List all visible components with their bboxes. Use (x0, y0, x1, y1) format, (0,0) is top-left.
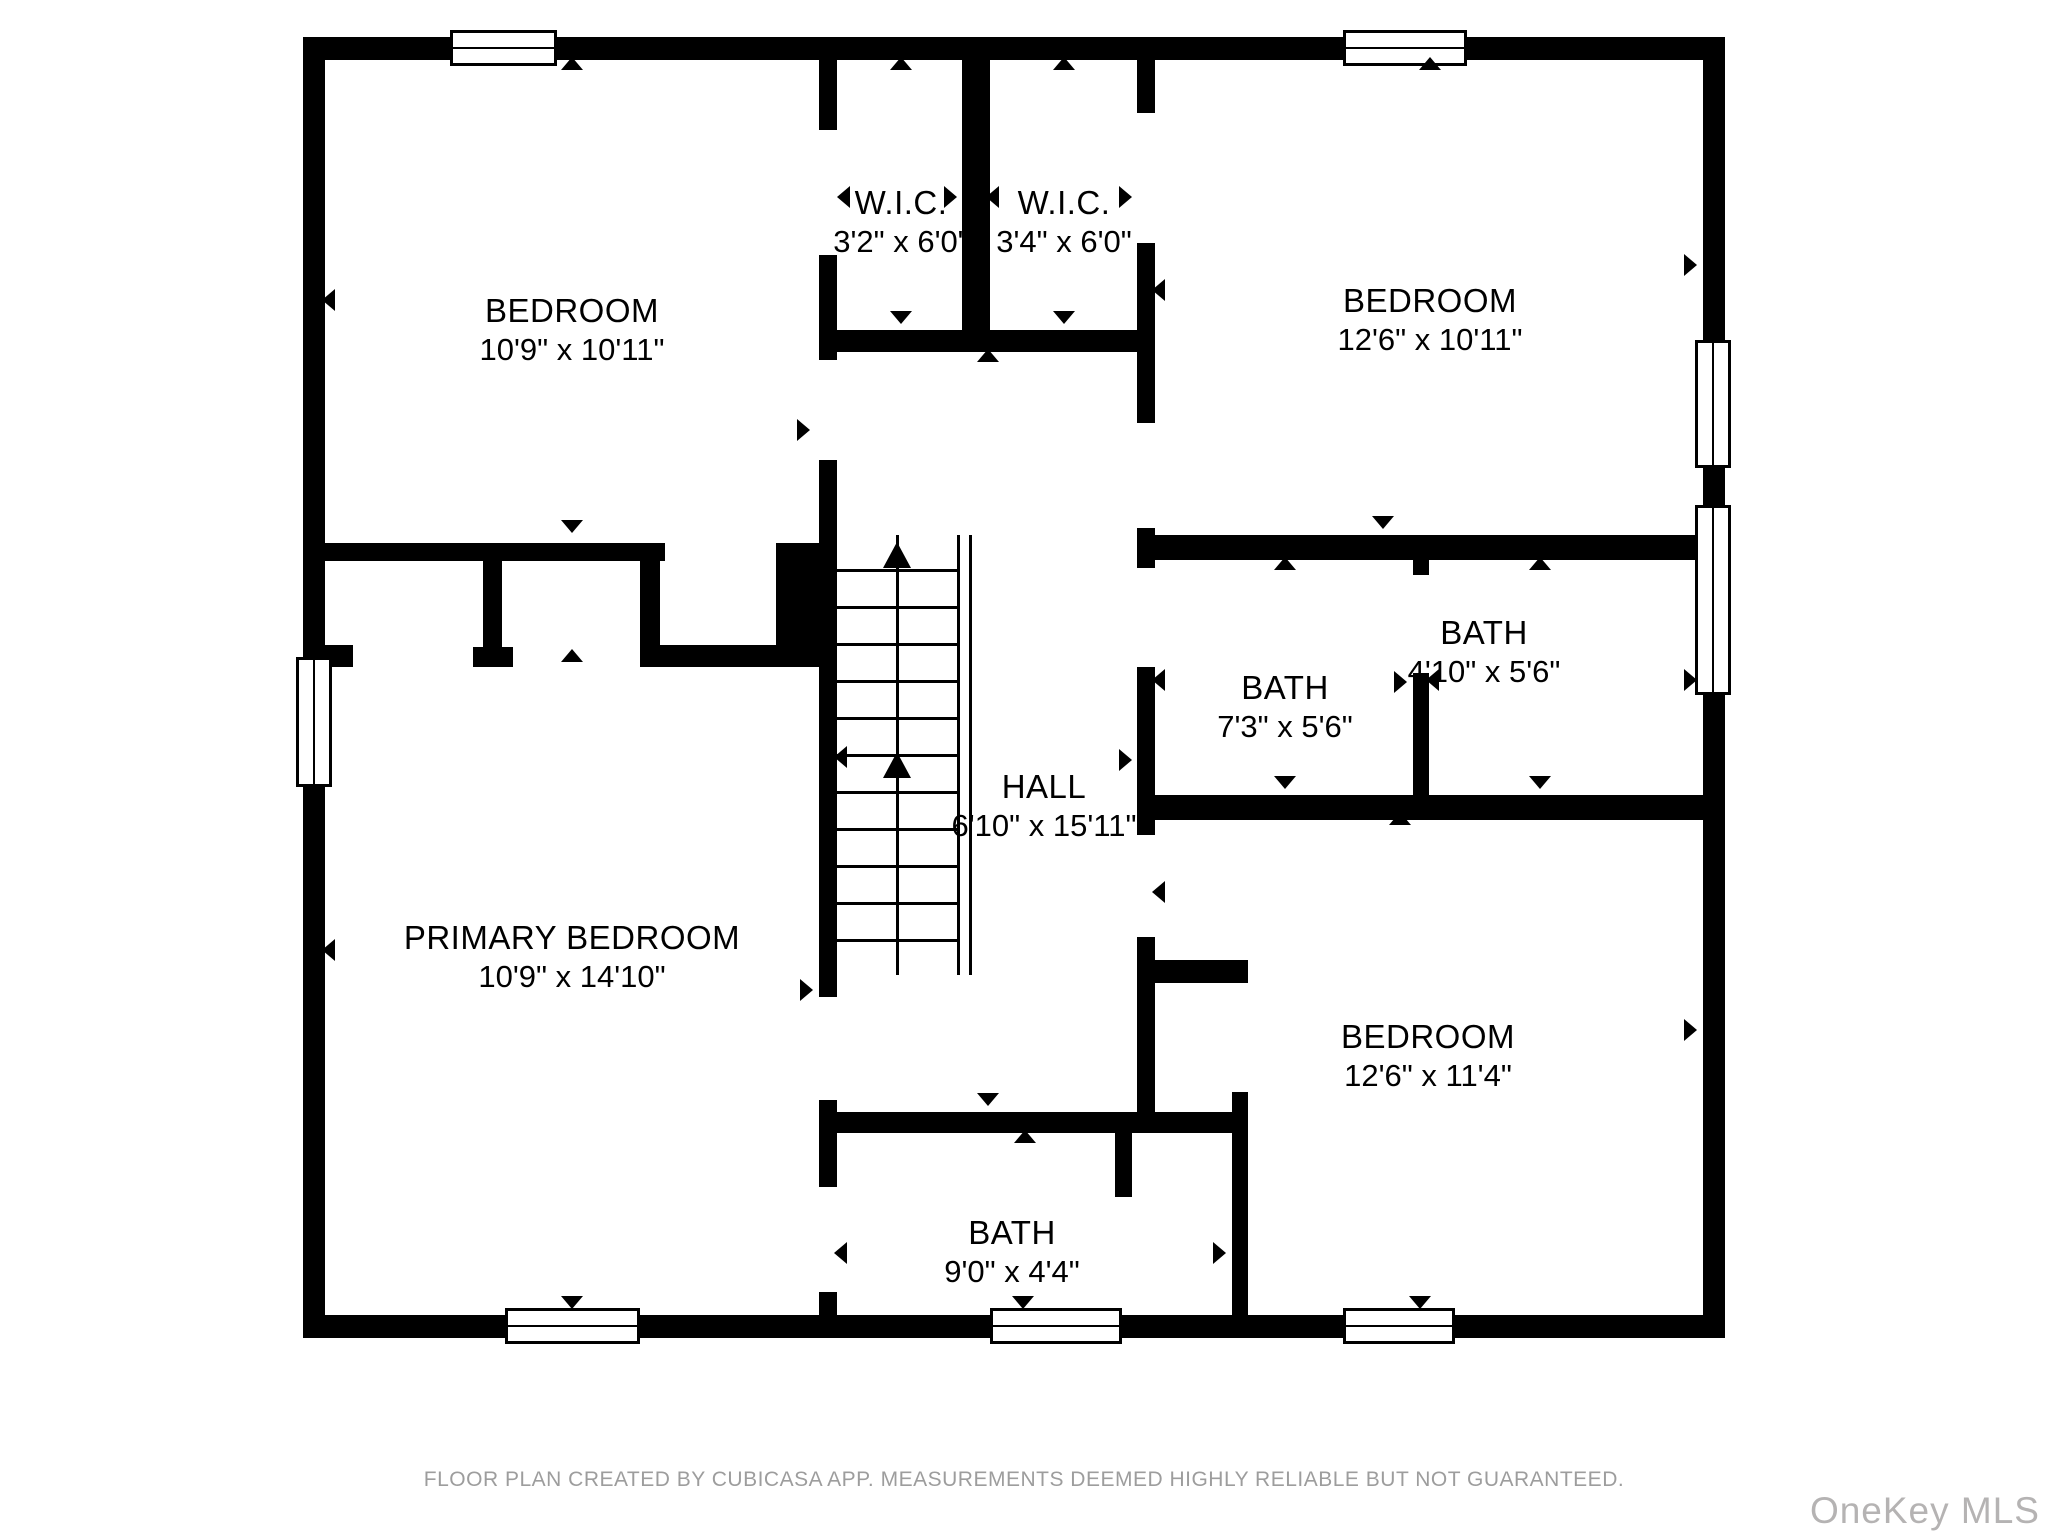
wall-midpoint-arrow-icon (561, 1296, 583, 1309)
window (1695, 340, 1731, 468)
window (505, 1308, 640, 1344)
wall (1137, 937, 1155, 1112)
wall-midpoint-arrow-icon (837, 186, 850, 208)
wall-midpoint-arrow-icon (1529, 776, 1551, 789)
wall (473, 647, 513, 667)
wall-midpoint-arrow-icon (1529, 557, 1551, 570)
wall-midpoint-arrow-icon (890, 57, 912, 70)
room-label-bedroom-top-right: BEDROOM 12'6" x 10'11" (1338, 280, 1523, 360)
room-name: BEDROOM (1341, 1016, 1515, 1057)
wall-midpoint-arrow-icon (797, 419, 810, 441)
wall-midpoint-arrow-icon (1014, 1130, 1036, 1143)
window (1343, 1308, 1455, 1344)
room-label-bedroom-bottom-right: BEDROOM 12'6" x 11'4" (1341, 1016, 1515, 1096)
room-label-wic-right: W.I.C. 3'4" x 6'0" (996, 182, 1132, 262)
wall (1413, 560, 1429, 575)
room-dims: 3'4" x 6'0" (996, 223, 1132, 262)
wall-midpoint-arrow-icon (1152, 669, 1165, 691)
wall-midpoint-arrow-icon (1152, 279, 1165, 301)
wall-midpoint-arrow-icon (800, 979, 813, 1001)
room-label-bath-middle: BATH 7'3" x 5'6" (1217, 667, 1353, 747)
window (296, 657, 332, 787)
room-dims: 6'10" x 15'11" (952, 807, 1137, 846)
room-dims: 9'0" x 4'4" (944, 1253, 1080, 1292)
wall-midpoint-arrow-icon (1394, 671, 1407, 693)
wall (1137, 243, 1155, 423)
window (1695, 505, 1731, 695)
room-name: BATH (1408, 612, 1561, 653)
wall-midpoint-arrow-icon (1119, 186, 1132, 208)
wall-midpoint-arrow-icon (1012, 1296, 1034, 1309)
wall (1232, 1092, 1248, 1318)
disclaimer-text: FLOOR PLAN CREATED BY CUBICASA APP. MEAS… (0, 1468, 2048, 1492)
wall-midpoint-arrow-icon (1684, 1019, 1697, 1041)
wall-midpoint-arrow-icon (561, 57, 583, 70)
wall (819, 1292, 837, 1318)
wall-midpoint-arrow-icon (977, 1093, 999, 1106)
room-label-bedroom-top-left: BEDROOM 10'9" x 10'11" (480, 290, 665, 370)
wall-midpoint-arrow-icon (1409, 1296, 1431, 1309)
stairs-up-arrow-icon (883, 542, 911, 568)
watermark-text: OneKey MLS (1810, 1490, 2040, 1532)
window (450, 30, 557, 66)
wall-midpoint-arrow-icon (1389, 812, 1411, 825)
wall-midpoint-arrow-icon (1213, 1242, 1226, 1264)
floor-plan-page: BEDROOM 10'9" x 10'11" W.I.C. 3'2" x 6'0… (0, 0, 2048, 1536)
room-dims: 10'9" x 10'11" (480, 331, 665, 370)
wall-midpoint-arrow-icon (561, 649, 583, 662)
room-dims: 3'2" x 6'0" (833, 223, 969, 262)
wall (819, 60, 837, 130)
staircase-rail (957, 535, 972, 975)
wall-midpoint-arrow-icon (322, 289, 335, 311)
wall-midpoint-arrow-icon (977, 349, 999, 362)
wall-midpoint-arrow-icon (834, 746, 847, 768)
wall (655, 645, 800, 667)
window (990, 1308, 1122, 1344)
room-dims: 10'9" x 14'10" (404, 958, 740, 997)
wall-midpoint-arrow-icon (1119, 749, 1132, 771)
wall-midpoint-arrow-icon (322, 939, 335, 961)
wall-midpoint-arrow-icon (1053, 311, 1075, 324)
wall-midpoint-arrow-icon (1419, 57, 1441, 70)
room-dims: 12'6" x 11'4" (1341, 1057, 1515, 1096)
wall-midpoint-arrow-icon (1372, 516, 1394, 529)
room-label-primary-bedroom: PRIMARY BEDROOM 10'9" x 14'10" (404, 917, 740, 997)
wall-midpoint-arrow-icon (890, 311, 912, 324)
room-dims: 12'6" x 10'11" (1338, 321, 1523, 360)
wall-midpoint-arrow-icon (1684, 669, 1697, 691)
room-name: HALL (952, 766, 1137, 807)
wall-midpoint-arrow-icon (834, 1242, 847, 1264)
wall-midpoint-arrow-icon (1426, 669, 1439, 691)
room-name: BATH (944, 1212, 1080, 1253)
room-name: BATH (1217, 667, 1353, 708)
wall-midpoint-arrow-icon (1684, 254, 1697, 276)
wall-midpoint-arrow-icon (561, 520, 583, 533)
wall-midpoint-arrow-icon (986, 186, 999, 208)
room-label-bath-bottom: BATH 9'0" x 4'4" (944, 1212, 1080, 1292)
room-name: BEDROOM (1338, 280, 1523, 321)
wall (1115, 1133, 1132, 1197)
room-name: PRIMARY BEDROOM (404, 917, 740, 958)
window (1343, 30, 1467, 66)
wall-midpoint-arrow-icon (1053, 57, 1075, 70)
wall (1232, 960, 1248, 983)
wall (1137, 535, 1725, 560)
room-name: W.I.C. (996, 182, 1132, 223)
room-name: BEDROOM (480, 290, 665, 331)
wall-midpoint-arrow-icon (1152, 881, 1165, 903)
wall (819, 460, 837, 997)
wall (1137, 795, 1725, 820)
wall-midpoint-arrow-icon (1274, 776, 1296, 789)
wall (1137, 60, 1155, 113)
room-label-hall: HALL 6'10" x 15'11" (952, 766, 1137, 846)
wall (1413, 673, 1429, 807)
stairs-up-arrow-icon (883, 752, 911, 778)
room-dims: 7'3" x 5'6" (1217, 708, 1353, 747)
wall-midpoint-arrow-icon (944, 186, 957, 208)
wall-midpoint-arrow-icon (1274, 557, 1296, 570)
